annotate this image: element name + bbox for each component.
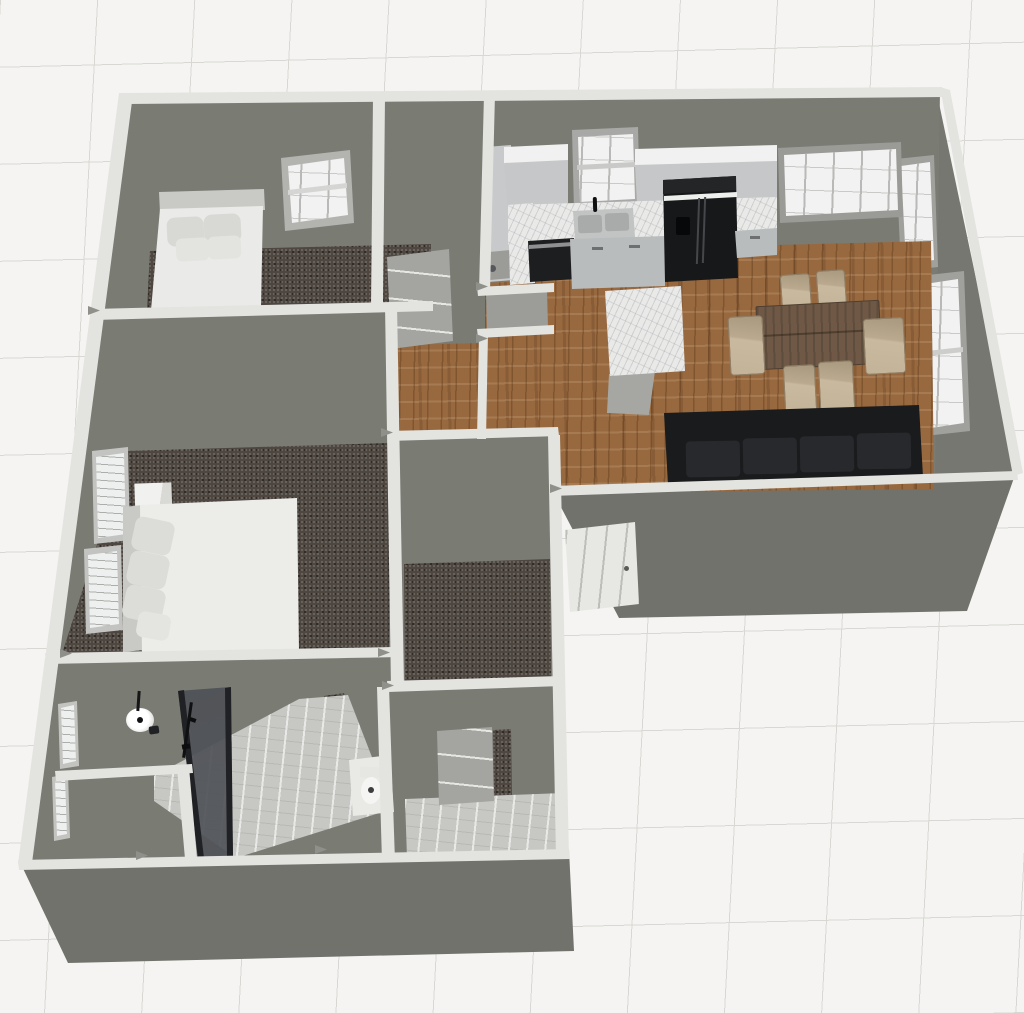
sink-basin-right xyxy=(605,213,630,232)
bedroom2-pillow-4 xyxy=(207,235,241,260)
dining-chair-4[interactable] xyxy=(863,317,907,375)
sofa-cushion-2 xyxy=(743,438,798,475)
cabinet-handle-3 xyxy=(750,236,760,239)
dining-chair-3[interactable] xyxy=(727,315,765,376)
vanity-drain xyxy=(137,717,143,723)
cabinet-handle-1 xyxy=(592,247,603,250)
sofa-cushion-3 xyxy=(800,436,855,473)
cabinet-handle-2 xyxy=(629,245,640,248)
master-pillow-4 xyxy=(135,610,172,641)
refrigerator-dispenser xyxy=(676,217,690,235)
sofa-cushion-4 xyxy=(857,433,912,470)
toilet-drain xyxy=(368,787,374,793)
sink-faucet xyxy=(593,197,598,212)
sofa-cushion-1 xyxy=(686,441,741,478)
bedroom2-pillow-3 xyxy=(175,237,209,262)
sink-basin-left xyxy=(578,215,603,234)
vanity-item xyxy=(148,725,159,734)
dining-chair-5[interactable] xyxy=(783,364,817,414)
front-door-handle xyxy=(624,566,629,571)
floorplan-scene xyxy=(0,0,1024,1013)
dining-chair-6[interactable] xyxy=(818,360,856,412)
